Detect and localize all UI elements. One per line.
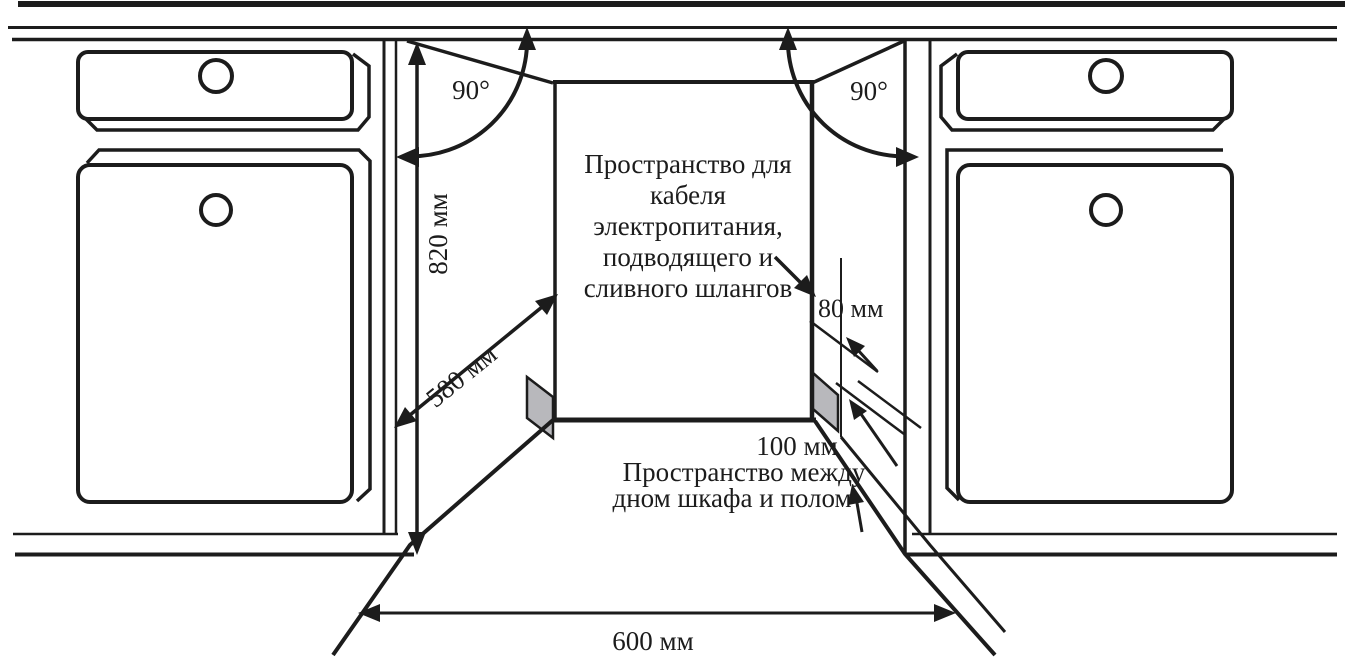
- left-cabinet: [78, 41, 396, 534]
- door-knob-icon: [201, 195, 231, 225]
- door-knob-icon: [1091, 195, 1121, 225]
- depth-label: 580 мм: [420, 339, 502, 414]
- drawer-knob-icon: [1090, 60, 1122, 92]
- left-cabinet-door-front: [78, 165, 352, 502]
- right-cabinet: [905, 41, 1232, 554]
- diagram-canvas: 90° 90° 820 мм 580 мм 600 мм Пространств…: [0, 0, 1345, 658]
- cable-space-line-2: кабеля: [650, 180, 726, 210]
- width-label: 600 мм: [612, 626, 693, 656]
- cable-space-line-4: подводящего и: [603, 242, 773, 272]
- countertop: [8, 4, 1345, 40]
- callout-arrow-shaft: [861, 414, 897, 466]
- dimension-width-600: 600 мм: [358, 604, 956, 656]
- drawer-knob-icon: [200, 60, 232, 92]
- cable-space-line-3: электропитания,: [593, 211, 783, 241]
- right-cabinet-door-bevel: [947, 150, 1223, 500]
- angle-label-right: 90°: [850, 76, 888, 106]
- cable-gap-label: 80 мм: [818, 294, 883, 323]
- callout-arrow-shaft: [857, 503, 862, 532]
- right-cabinet-door-front: [958, 165, 1232, 502]
- cable-space-line-1: Пространство для: [584, 149, 791, 179]
- arrowhead-right-icon: [896, 147, 919, 167]
- cable-space-line-5: сливного шлангов: [584, 273, 793, 303]
- floor: [13, 534, 1337, 555]
- hatch-line: [810, 321, 878, 372]
- height-label: 820 мм: [423, 193, 453, 274]
- floor-space-line-2: дном шкафа и полом: [612, 483, 851, 513]
- dimension-height-820: 820 мм: [408, 42, 453, 555]
- left-cabinet-drawer-front: [78, 52, 352, 119]
- angle-label-left: 90°: [452, 75, 490, 105]
- niche-perspective-bottom-left: [333, 420, 553, 655]
- installation-diagram: 90° 90° 820 мм 580 мм 600 мм Пространств…: [0, 0, 1345, 658]
- door-swing-right: 90°: [779, 27, 919, 167]
- cable-space-callout: Пространство для кабеля электропитания, …: [584, 149, 884, 371]
